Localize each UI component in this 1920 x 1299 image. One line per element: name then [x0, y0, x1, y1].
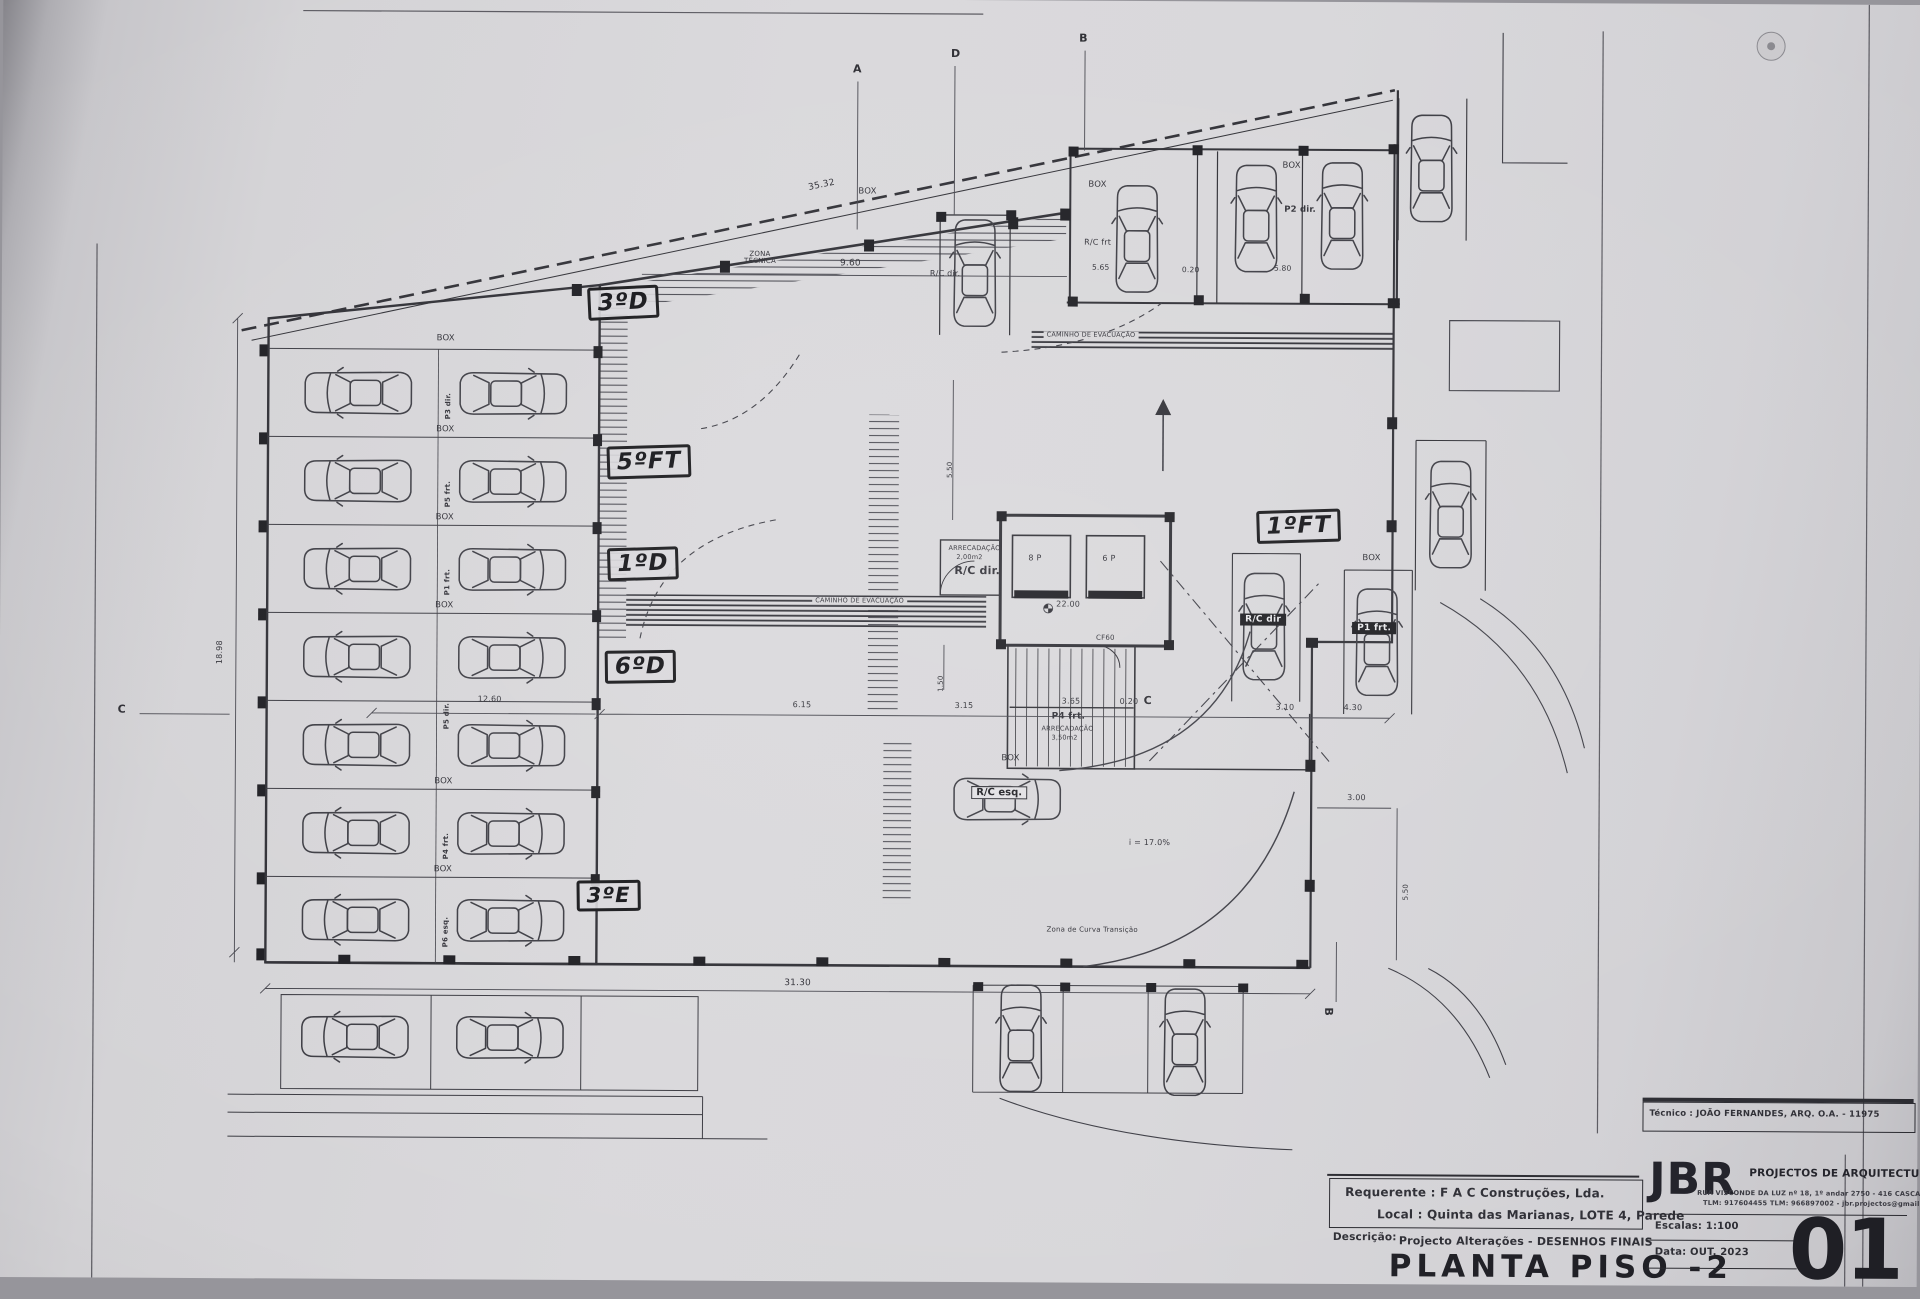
car-icon [457, 1012, 563, 1063]
fire-door-cf60: CF60 [1096, 635, 1115, 642]
arrecadacao-rc-area: 2,00m2 [956, 554, 982, 561]
punch-hole-center [1767, 42, 1775, 50]
rc-frt-stall: R/C frt [1084, 239, 1111, 248]
car-icon [1425, 461, 1476, 567]
column-marker [1306, 638, 1318, 648]
car-icon [303, 807, 409, 858]
car-icon [457, 895, 563, 946]
caminho-evacuacao-mid: CAMINHO DE EVACUAÇÃO [812, 597, 907, 604]
column-marker [693, 957, 705, 966]
stall-p6-esq: P6 esq. [442, 917, 450, 947]
car-icon [1239, 573, 1290, 679]
dim-1-50: 1.50 [938, 675, 945, 691]
stall-p5-frt: P5 frt. [445, 481, 452, 507]
column-marker [1069, 147, 1079, 157]
column-marker [592, 610, 601, 622]
stall-p1-frt: P1 frt. [444, 569, 451, 595]
column-marker [1060, 209, 1070, 221]
dim-3-15: 3.15 [955, 702, 974, 710]
column-marker [1387, 417, 1397, 429]
column-marker [720, 261, 730, 273]
firm-subtitle: PROJECTOS DE ARQUITECTURA [1749, 1168, 1920, 1180]
zona-curva-label: Zona de Curva Transição [1046, 926, 1137, 934]
box-label-right: BOX [1362, 554, 1380, 563]
column-marker [1299, 146, 1309, 156]
column-marker [443, 955, 455, 964]
dim-3-65: 3.65 [1062, 698, 1081, 706]
column-marker [1183, 959, 1195, 968]
car-icon [459, 544, 565, 595]
car-icon [304, 631, 410, 682]
sheet-frame-lines [92, 0, 1870, 1287]
floor-plan-drawing [0, 0, 1920, 1287]
local-row: Local : Quinta das Marianas, LOTE 4, Par… [1377, 1208, 1685, 1222]
column-marker [816, 957, 828, 966]
box-row1: BOX [437, 334, 455, 343]
dim-5-50-core: 5.50 [947, 462, 954, 478]
dim-18-98: 18.98 [216, 640, 225, 664]
handwritten-1d: 1ºD [607, 546, 679, 581]
column-marker [258, 608, 266, 620]
column-marker [259, 344, 267, 356]
column-marker [258, 696, 266, 708]
rc-dir-top-stall: R/C dir. [930, 270, 960, 279]
car-icon [458, 720, 564, 771]
column-marker [1389, 144, 1399, 154]
p1-frt-car-tag: P1 frt. [1352, 622, 1396, 634]
section-marker-c-left: C [118, 704, 126, 716]
column-marker [259, 432, 267, 444]
section-marker-a: A [853, 63, 862, 75]
slope-label: i = 17.0% [1129, 839, 1170, 848]
box-label-topright-2: BOX [1282, 162, 1300, 171]
requerente-row: Requerente : F A C Construções, Lda. [1345, 1186, 1605, 1200]
dim-4-30: 4.30 [1344, 704, 1363, 712]
descricao-label: Descrição: [1333, 1232, 1397, 1243]
car-icon [1231, 165, 1282, 271]
column-marker [259, 520, 267, 532]
column-marker [973, 982, 983, 991]
car-icon [305, 455, 411, 506]
ramp-curves [637, 28, 1588, 1151]
car-icon [304, 543, 410, 594]
p2-dir-stall: P2 dir. [1284, 206, 1316, 215]
column-marker [591, 786, 600, 798]
dim-5-65: 5.65 [1092, 264, 1110, 272]
arrecadacao-p4-label: ARRECADAÇÃO [1042, 725, 1094, 732]
handwritten-5ft: 5ºFT [606, 444, 691, 479]
column-marker [1387, 520, 1397, 532]
dim-0-20-mid: 0.20 [1120, 698, 1139, 706]
column-marker [1006, 210, 1016, 220]
column-marker [1388, 298, 1400, 308]
car-icon [460, 456, 566, 507]
sheet-number: 01 [1789, 1200, 1902, 1299]
column-marker [593, 434, 602, 446]
dim-5-80: 5.80 [1274, 265, 1292, 273]
box-label-topcenter: BOX [858, 187, 876, 196]
column-marker [593, 522, 602, 534]
column-marker [996, 639, 1006, 649]
column-marker [592, 698, 601, 710]
column-marker [1296, 960, 1308, 969]
column-marker [1060, 959, 1072, 968]
box-row4: BOX [435, 601, 453, 610]
section-marker-b-bottom: B [1323, 1007, 1335, 1016]
tecnico-text: Técnico : JOÃO FERNANDES, ARQ. O.A. - 11… [1650, 1110, 1880, 1120]
car-icon [302, 894, 408, 945]
level-value: 22.00 [1056, 601, 1080, 610]
car-icon [1317, 163, 1368, 269]
car-icon [1159, 989, 1210, 1095]
firm-address-1: RUA VISCONDE DA LUZ nº 18, 1º andar 2750… [1697, 1190, 1920, 1198]
car-icon [302, 1011, 408, 1062]
rc-dir-car-tag: R/C dir [1240, 613, 1286, 625]
stall-p3-dir: P3 dir. [445, 393, 452, 419]
dim-3-10: 3.10 [1276, 704, 1295, 712]
section-marker-b-top: B [1079, 33, 1088, 45]
column-marker [936, 212, 946, 222]
descricao-text: Projecto Alterações - DESENHOS FINAIS [1399, 1235, 1653, 1248]
dim-31-30: 31.30 [784, 979, 811, 989]
paper-sheet: ZONATÉCNICA 35.32 9.60 CAMINHO DE EVACUA… [0, 0, 1920, 1287]
arrecadacao-p4-area: 3,50m2 [1051, 734, 1077, 741]
column-marker [1165, 512, 1175, 522]
escalas-row: Escalas: 1:100 [1655, 1222, 1739, 1233]
dim-6-15: 6.15 [793, 701, 812, 709]
column-marker [572, 284, 582, 296]
car-icon [458, 808, 564, 859]
column-marker [1060, 983, 1070, 992]
car-icon [460, 368, 566, 419]
photographed-drawing: ZONATÉCNICA 35.32 9.60 CAMINHO DE EVACUA… [0, 0, 1920, 1282]
column-marker [1146, 983, 1156, 992]
box-row7: BOX [434, 865, 452, 874]
column-marker [1238, 983, 1248, 992]
column-marker [568, 956, 580, 965]
column-marker [997, 511, 1007, 521]
dim-5-50-right: 5.50 [1403, 884, 1410, 900]
column-marker [1164, 640, 1174, 650]
dim-9-60: 9.60 [840, 259, 861, 269]
rc-dir-storage: R/C dir. [954, 565, 1000, 577]
caminho-evacuacao-top: CAMINHO DE EVACUAÇÃO [1044, 331, 1139, 338]
car-icon [459, 632, 565, 683]
dim-0-20-top: 0.20 [1182, 266, 1200, 274]
column-marker [1305, 880, 1315, 892]
section-marker-c-right: C [1144, 695, 1152, 707]
elevator-8p: 8 P [1028, 554, 1041, 562]
section-marker-d: D [951, 48, 960, 60]
p4-frt-storage: P4 frt. [1052, 712, 1086, 722]
box-row6: BOX [434, 777, 452, 786]
car-icon [305, 367, 411, 418]
box-row3: BOX [436, 513, 454, 522]
handwritten-3d: 3ºD [587, 285, 660, 321]
dim-12-60: 12.60 [478, 695, 502, 704]
zona-tecnica-label: ZONATÉCNICA [744, 251, 776, 266]
column-marker [593, 346, 602, 358]
handwritten-1ft: 1ºFT [1256, 509, 1341, 544]
car-icon [303, 719, 409, 770]
rc-esq-car-tag: R/C esq. [971, 786, 1027, 799]
column-marker [864, 239, 874, 251]
box-label-rcesq: BOX [1001, 754, 1019, 763]
firm-logo: JBR [1649, 1154, 1736, 1205]
handwritten-3e: 3ºE [576, 880, 640, 912]
car-icon [1112, 186, 1163, 292]
column-marker [1194, 295, 1204, 305]
column-marker [338, 955, 350, 964]
car-icon [995, 985, 1046, 1091]
column-marker [938, 958, 950, 967]
handwritten-6d: 6ºD [605, 650, 676, 684]
stall-p4-frt: P4 frt. [443, 833, 450, 859]
car-icon [1406, 115, 1457, 221]
elevator-6p: 6 P [1102, 555, 1115, 563]
column-marker [257, 872, 265, 884]
column-marker [1193, 145, 1203, 155]
column-marker [1068, 297, 1078, 307]
arrecadacao-rc-label: ARRECADAÇÃO [948, 545, 1000, 552]
box-label-topright-1: BOX [1088, 181, 1106, 190]
column-marker [1300, 294, 1310, 304]
column-marker [256, 948, 264, 960]
box-row2: BOX [436, 425, 454, 434]
dim-3-00: 3.00 [1347, 794, 1366, 802]
column-marker [257, 784, 265, 796]
stall-p5-dir: P5 dir. [444, 703, 451, 729]
column-marker [1305, 760, 1315, 772]
dimension-lines [138, 46, 1401, 1003]
data-row: Data: OUT. 2023 [1655, 1248, 1749, 1259]
